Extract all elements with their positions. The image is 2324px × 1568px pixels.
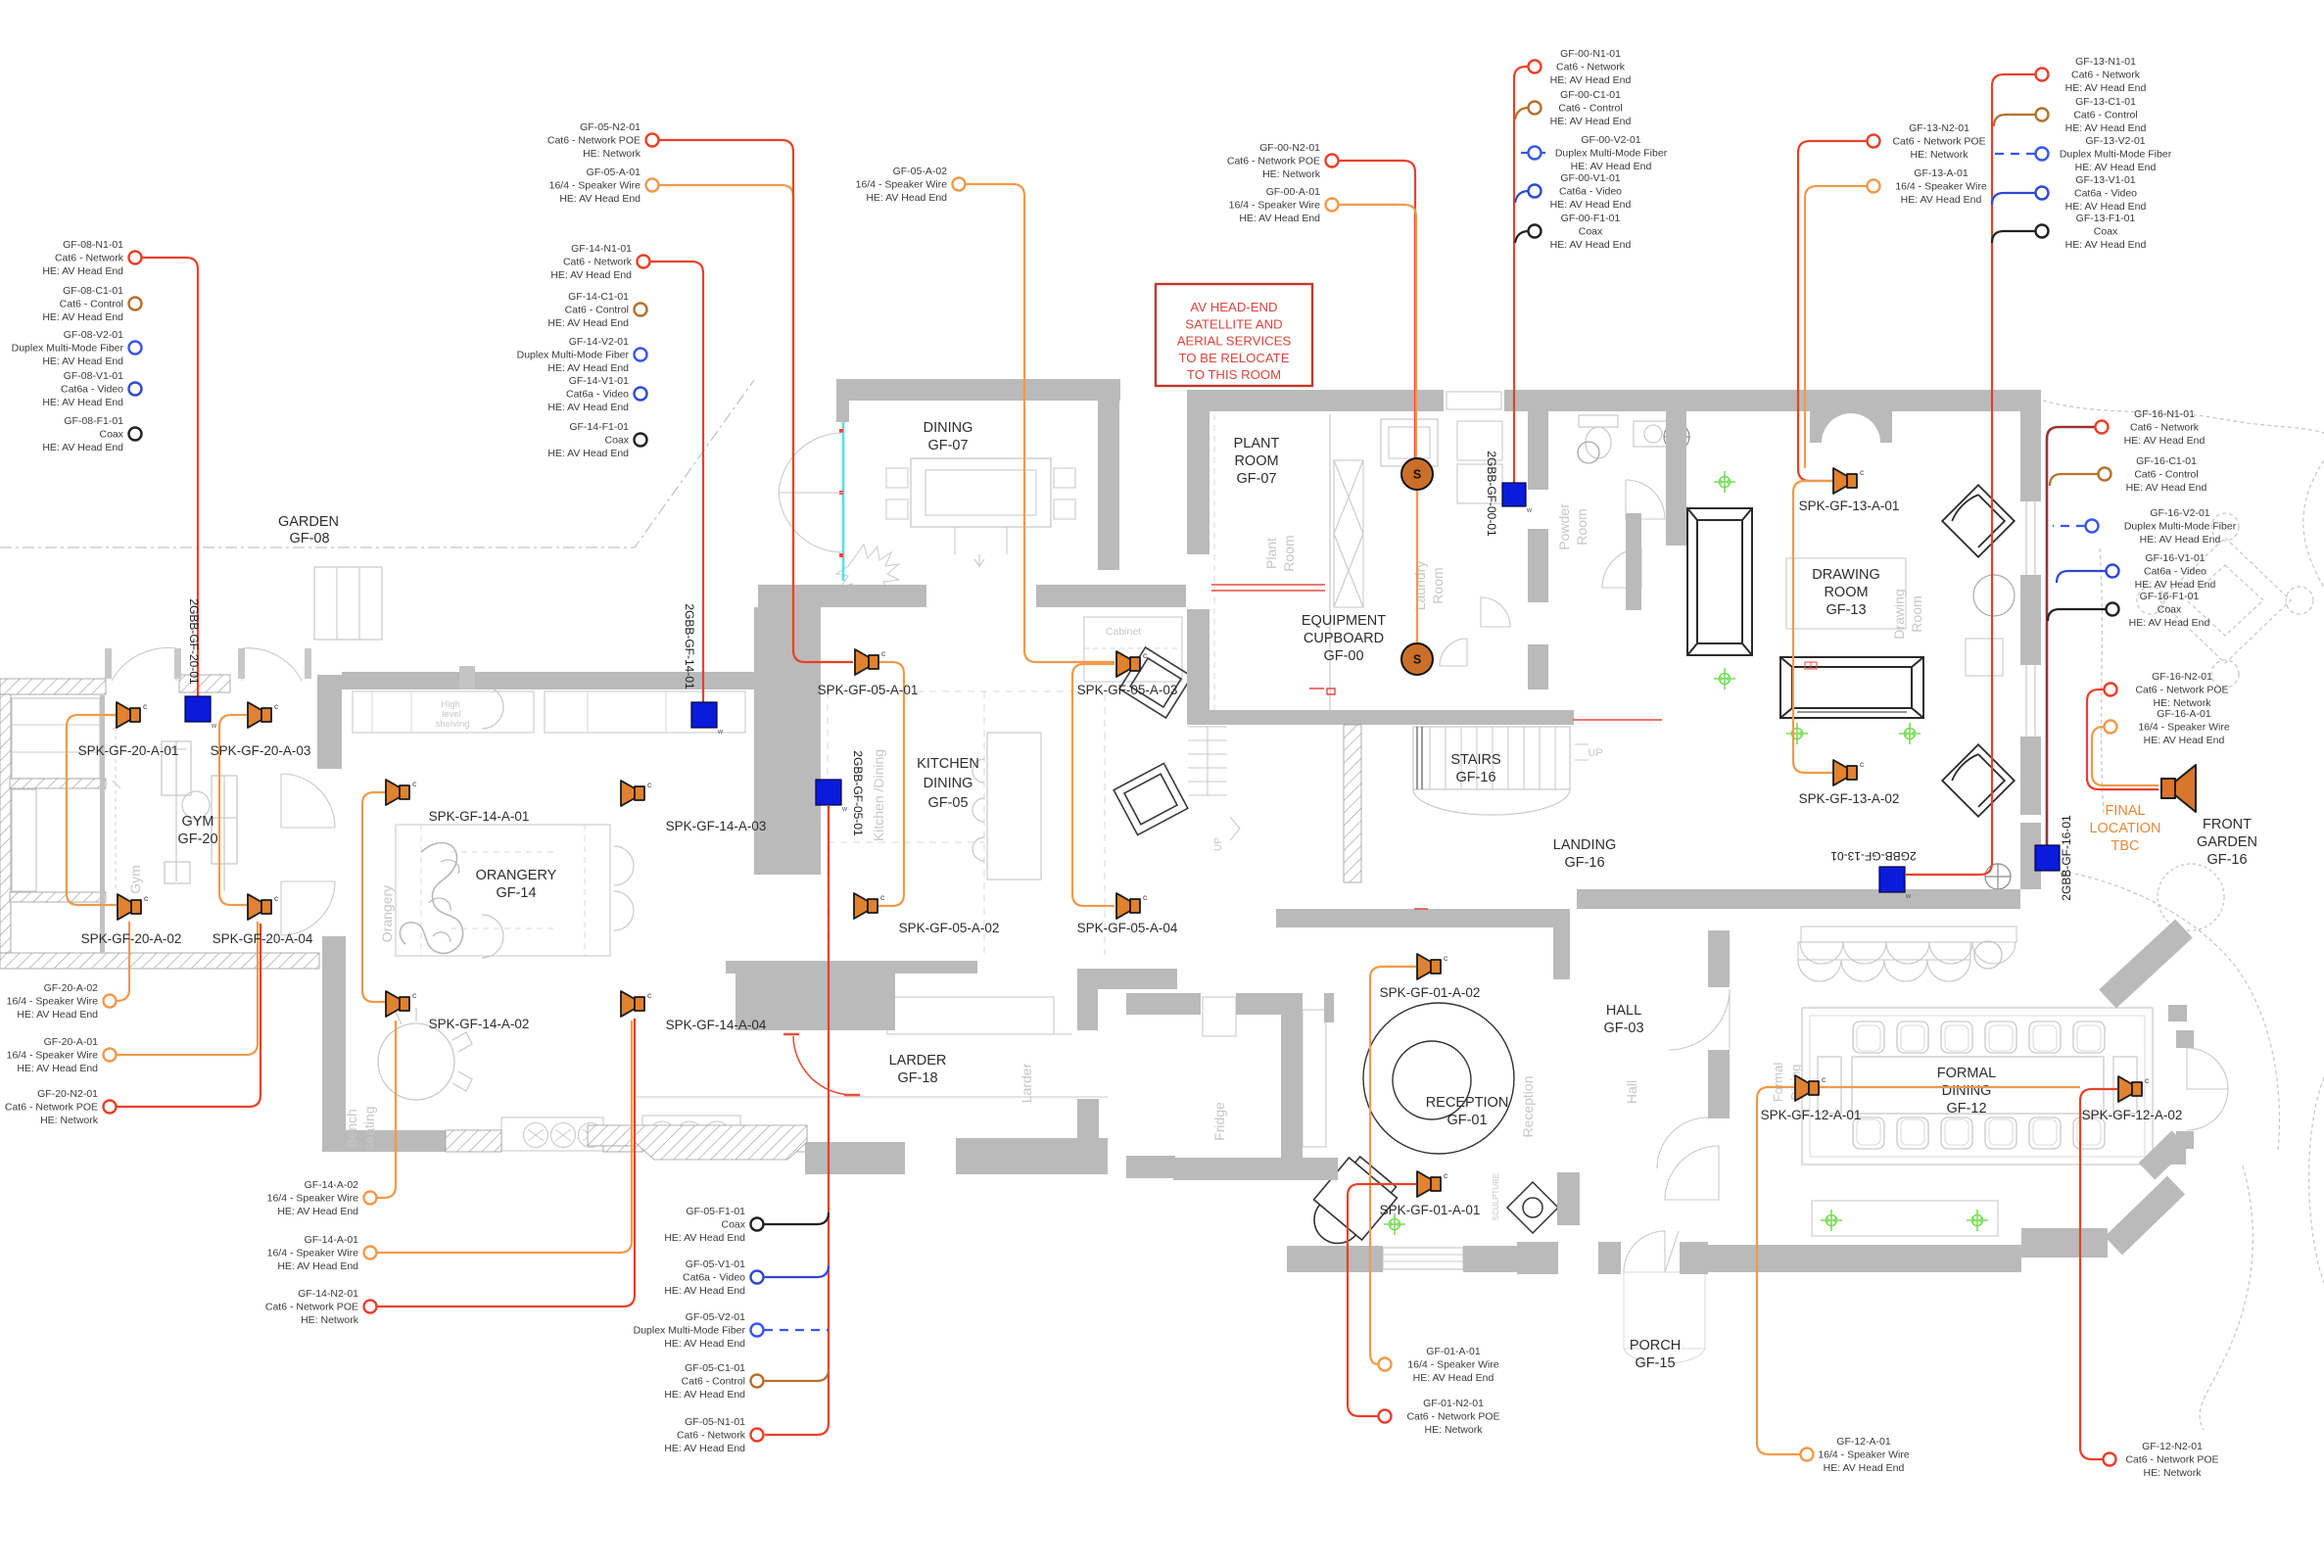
svg-text:FINAL: FINAL [2105,803,2145,819]
svg-text:GF-05-A-02: GF-05-A-02 [893,166,948,177]
svg-text:2GBB-GF-13-01: 2GBB-GF-13-01 [1830,849,1917,863]
svg-text:GF-00-F1-01: GF-00-F1-01 [1561,213,1621,224]
svg-text:ROOM: ROOM [1824,585,1868,600]
svg-text:AERIAL SERVICES: AERIAL SERVICES [1177,334,1292,349]
svg-text:HE: AV Head End: HE: AV Head End [2124,435,2205,447]
svg-text:Cat6 - Network: Cat6 - Network [2130,422,2200,434]
svg-text:HE: AV Head End: HE: AV Head End [2065,239,2147,251]
svg-text:16/4 - Speaker Wire: 16/4 - Speaker Wire [856,179,948,191]
svg-text:shelving: shelving [436,719,470,730]
svg-text:HE: AV Head End: HE: AV Head End [866,192,947,204]
svg-text:GF-14-A-01: GF-14-A-01 [305,1234,359,1246]
svg-text:Duplex Multi-Mode Fiber: Duplex Multi-Mode Fiber [2060,149,2172,161]
svg-text:HE: AV Head End: HE: AV Head End [2065,122,2147,134]
svg-text:GF-16-N1-01: GF-16-N1-01 [2134,408,2195,420]
svg-text:GF-05: GF-05 [927,795,968,811]
svg-text:HE: AV Head End: HE: AV Head End [2065,201,2147,213]
svg-text:GF-16: GF-16 [1455,770,1495,785]
svg-text:HE: AV Head End: HE: AV Head End [42,442,123,453]
svg-text:Cat6 - Network POE: Cat6 - Network POE [1227,156,1320,167]
svg-text:Cat6 - Network: Cat6 - Network [677,1430,746,1442]
svg-text:GF-15: GF-15 [1635,1355,1675,1371]
svg-text:Cat6 - Network POE: Cat6 - Network POE [2135,685,2228,696]
svg-text:Room: Room [1430,567,1446,603]
svg-text:HE: AV Head End: HE: AV Head End [664,1443,745,1454]
svg-text:GF-01: GF-01 [1447,1113,1487,1128]
svg-text:HE: AV Head End: HE: AV Head End [547,362,629,374]
svg-text:Fridge: Fridge [1211,1102,1227,1141]
svg-text:HE: AV Head End: HE: AV Head End [2129,617,2210,629]
svg-text:GARDEN: GARDEN [2197,834,2257,850]
svg-text:GF-13-A-01: GF-13-A-01 [1914,167,1968,179]
svg-text:SPK-GF-12-A-01: SPK-GF-12-A-01 [1761,1108,1862,1122]
svg-text:SPK-GF-14-A-04: SPK-GF-14-A-04 [666,1018,767,1032]
svg-text:GF-13-F1-01: GF-13-F1-01 [2076,213,2136,224]
svg-text:GF-05-A-01: GF-05-A-01 [587,166,641,178]
svg-text:HE: AV Head End: HE: AV Head End [547,448,629,459]
svg-text:PLANT: PLANT [1234,436,1280,451]
svg-text:Cat6 - Network POE: Cat6 - Network POE [547,135,640,147]
svg-text:FRONT: FRONT [2203,817,2252,832]
svg-text:w: w [211,723,217,730]
svg-text:GF-13: GF-13 [1826,602,1866,618]
svg-text:HE: Network: HE: Network [583,148,641,160]
svg-text:Duplex Multi-Mode Fiber: Duplex Multi-Mode Fiber [1555,148,1668,160]
svg-text:GF-16-C1-01: GF-16-C1-01 [2136,455,2197,467]
svg-text:HE: AV Head End: HE: AV Head End [42,265,123,277]
svg-text:Cat6 - Control: Cat6 - Control [60,299,123,310]
svg-text:SPK-GF-05-A-03: SPK-GF-05-A-03 [1077,683,1178,697]
svg-text:Cat6 - Network: Cat6 - Network [2071,70,2141,81]
svg-text:Duplex Multi-Mode Fiber: Duplex Multi-Mode Fiber [517,350,630,361]
svg-text:Formal: Formal [1771,1063,1785,1103]
svg-text:Gym: Gym [127,865,143,894]
svg-text:Duplex Multi-Mode Fiber: Duplex Multi-Mode Fiber [12,343,124,355]
svg-text:HE: AV Head End: HE: AV Head End [17,1063,98,1074]
svg-text:HE: AV Head End: HE: AV Head End [550,269,632,281]
svg-text:DRAWING: DRAWING [1812,567,1880,583]
svg-text:SPK-GF-05-A-04: SPK-GF-05-A-04 [1077,921,1178,935]
svg-text:GF-08-C1-01: GF-08-C1-01 [63,285,123,297]
svg-text:HE: AV Head End: HE: AV Head End [2144,735,2225,746]
svg-text:GF-05-V1-01: GF-05-V1-01 [686,1259,745,1270]
svg-text:Powder: Powder [1556,503,1572,550]
svg-text:PORCH: PORCH [1630,1338,1681,1354]
svg-text:HE: AV Head End: HE: AV Head End [664,1285,745,1297]
svg-text:HE: AV Head End: HE: AV Head End [17,1009,98,1021]
svg-text:TO THIS ROOM: TO THIS ROOM [1187,367,1281,382]
svg-text:Cat6 - Network POE: Cat6 - Network POE [5,1102,98,1114]
svg-text:16/4 - Speaker Wire: 16/4 - Speaker Wire [1229,200,1321,212]
svg-text:GF-00-N2-01: GF-00-N2-01 [1259,142,1320,154]
svg-text:HE: AV Head End: HE: AV Head End [1550,239,1632,251]
svg-text:S: S [1413,468,1421,482]
svg-text:Cat6 - Network: Cat6 - Network [55,253,124,264]
svg-text:DINING: DINING [1942,1083,1992,1099]
svg-text:TBC: TBC [2111,838,2140,854]
svg-text:GF-13-V1-01: GF-13-V1-01 [2075,174,2135,186]
svg-text:DINING: DINING [924,420,973,436]
svg-text:16/4 - Speaker Wire: 16/4 - Speaker Wire [1407,1359,1499,1371]
svg-text:GF-16-F1-01: GF-16-F1-01 [2140,591,2200,602]
svg-text:GF-18: GF-18 [897,1070,937,1086]
svg-text:LARDER: LARDER [889,1053,947,1069]
svg-text:Duplex Multi-Mode Fiber: Duplex Multi-Mode Fiber [2124,521,2237,533]
svg-text:HE: AV Head End: HE: AV Head End [664,1338,745,1350]
svg-text:GF-03: GF-03 [1603,1021,1643,1036]
svg-text:HE: Network: HE: Network [40,1115,99,1126]
svg-text:Cat6a - Video: Cat6a - Video [566,389,629,401]
svg-text:SPK-GF-13-A-01: SPK-GF-13-A-01 [1799,499,1900,513]
svg-text:HE: AV Head End: HE: AV Head End [42,397,123,408]
svg-text:GF-01-A-01: GF-01-A-01 [1426,1346,1481,1357]
svg-text:GF-14-C1-01: GF-14-C1-01 [568,291,629,303]
svg-text:GF-14-A-02: GF-14-A-02 [305,1179,359,1191]
svg-text:HE: Network: HE: Network [301,1314,359,1326]
svg-text:Coax: Coax [1579,226,1603,238]
svg-text:SPK-GF-20-A-02: SPK-GF-20-A-02 [81,931,182,946]
svg-text:RECEPTION: RECEPTION [1426,1095,1509,1111]
svg-text:SPK-GF-14-A-02: SPK-GF-14-A-02 [429,1017,530,1031]
svg-text:SPK-GF-20-A-03: SPK-GF-20-A-03 [211,743,311,758]
svg-text:GF-14-V1-01: GF-14-V1-01 [569,375,629,387]
svg-text:GF-05-F1-01: GF-05-F1-01 [686,1206,745,1217]
svg-text:SPK-GF-01-A-02: SPK-GF-01-A-02 [1380,985,1481,1000]
svg-text:HE: AV Head End: HE: AV Head End [1413,1372,1494,1384]
svg-text:HE: Network: HE: Network [2144,1467,2203,1479]
svg-text:Orangery: Orangery [379,885,395,942]
svg-text:GF-16-V2-01: GF-16-V2-01 [2150,507,2209,519]
svg-text:GF-08-F1-01: GF-08-F1-01 [64,415,123,427]
svg-text:Room: Room [1281,535,1297,571]
svg-text:GF-20-N2-01: GF-20-N2-01 [37,1088,98,1100]
svg-text:SCULPTURE: SCULPTURE [1492,1173,1500,1220]
svg-text:GF-07: GF-07 [1236,471,1276,487]
svg-text:Larder: Larder [1019,1063,1034,1103]
svg-text:2GBB-GF-00-01: 2GBB-GF-00-01 [1485,451,1498,537]
svg-text:Cat6 - Control: Cat6 - Control [2134,469,2198,481]
svg-text:Cat6 - Control: Cat6 - Control [1558,103,1622,115]
svg-text:16/4 - Speaker Wire: 16/4 - Speaker Wire [1895,181,1987,193]
svg-text:GF-14: GF-14 [496,885,536,901]
svg-text:16/4 - Speaker Wire: 16/4 - Speaker Wire [267,1248,359,1259]
svg-text:HE: AV Head End: HE: AV Head End [2135,579,2216,591]
svg-text:Coax: Coax [721,1219,745,1231]
svg-text:GF-05-C1-01: GF-05-C1-01 [685,1362,745,1374]
svg-text:GF-16-N2-01: GF-16-N2-01 [2152,671,2212,683]
svg-text:Coax: Coax [604,435,629,447]
svg-text:GF-12-A-01: GF-12-A-01 [1836,1436,1891,1448]
svg-text:GF-16-A-01: GF-16-A-01 [2157,708,2211,720]
svg-text:HE: AV Head End: HE: AV Head End [1550,199,1632,211]
svg-text:GF-00-V1-01: GF-00-V1-01 [1560,172,1620,184]
svg-text:2GBB-GF-16-01: 2GBB-GF-16-01 [2060,815,2073,901]
svg-text:HE: AV Head End: HE: AV Head End [277,1206,358,1217]
svg-text:HE: AV Head End: HE: AV Head End [2140,534,2221,546]
svg-text:SPK-GF-05-A-02: SPK-GF-05-A-02 [899,921,1000,935]
svg-text:GF-08-N1-01: GF-08-N1-01 [63,239,123,251]
svg-text:w: w [1526,507,1533,514]
svg-text:Cat6 - Network POE: Cat6 - Network POE [1892,136,1985,148]
svg-text:SPK-GF-14-A-03: SPK-GF-14-A-03 [666,819,767,833]
svg-text:GF-20: GF-20 [177,832,217,847]
svg-text:GYM: GYM [181,814,213,830]
svg-text:Cat6 - Network: Cat6 - Network [1556,62,1626,73]
svg-text:Cat6 - Control: Cat6 - Control [565,305,629,316]
svg-text:GF-05-V2-01: GF-05-V2-01 [686,1311,745,1323]
svg-text:w: w [841,806,848,813]
svg-text:Hall: Hall [1624,1080,1639,1104]
svg-text:HE: AV Head End: HE: AV Head End [2126,482,2207,494]
svg-text:GF-00-C1-01: GF-00-C1-01 [1560,89,1621,101]
svg-text:HE: AV Head End: HE: AV Head End [547,402,629,413]
svg-text:SPK-GF-05-A-01: SPK-GF-05-A-01 [818,683,919,697]
svg-text:HE: AV Head End: HE: AV Head End [547,317,629,329]
svg-text:16/4 - Speaker Wire: 16/4 - Speaker Wire [1818,1449,1910,1461]
svg-text:GF-12: GF-12 [1946,1101,1986,1117]
svg-text:HE: AV Head End: HE: AV Head End [559,193,640,205]
svg-text:Cat6 - Network POE: Cat6 - Network POE [265,1302,358,1313]
svg-text:Plant: Plant [1263,538,1279,569]
svg-text:AV HEAD-END: AV HEAD-END [1190,300,1277,314]
svg-text:HE: AV Head End: HE: AV Head End [1550,74,1632,86]
svg-text:16/4 - Speaker Wire: 16/4 - Speaker Wire [549,180,641,192]
svg-text:HE: AV Head End: HE: AV Head End [1901,194,1982,206]
svg-text:GF-14-F1-01: GF-14-F1-01 [569,421,629,433]
svg-text:GF-20-A-01: GF-20-A-01 [44,1036,99,1048]
svg-text:GF-08: GF-08 [289,531,329,546]
svg-text:HE: AV Head End: HE: AV Head End [2065,82,2147,94]
svg-text:Duplex Multi-Mode Fiber: Duplex Multi-Mode Fiber [634,1325,746,1337]
svg-text:GARDEN: GARDEN [278,514,339,530]
svg-text:KITCHEN: KITCHEN [917,756,979,772]
svg-text:Cat6a - Video: Cat6a - Video [683,1272,745,1284]
svg-text:2GBB-GF-20-01: 2GBB-GF-20-01 [187,598,201,685]
svg-text:GF-13-N1-01: GF-13-N1-01 [2075,56,2136,68]
svg-text:Room: Room [1574,508,1589,545]
svg-text:GF-00-N1-01: GF-00-N1-01 [1560,48,1621,60]
svg-text:TO BE RELOCATE: TO BE RELOCATE [1178,351,1289,365]
svg-text:Cat6 - Network: Cat6 - Network [563,257,633,268]
svg-text:SATELLITE AND: SATELLITE AND [1185,316,1282,331]
svg-text:Cat6a - Video: Cat6a - Video [61,384,123,396]
svg-text:Bench: Bench [344,1109,359,1148]
svg-text:GF-13-N2-01: GF-13-N2-01 [1909,122,1969,134]
svg-text:SPK-GF-20-A-04: SPK-GF-20-A-04 [213,931,313,946]
svg-text:LOCATION: LOCATION [2089,821,2160,836]
svg-text:SPK-GF-20-A-01: SPK-GF-20-A-01 [78,743,179,758]
svg-text:Cat6 - Control: Cat6 - Control [682,1376,745,1388]
svg-text:HE: Network: HE: Network [1911,149,1969,161]
svg-text:HE: AV Head End: HE: AV Head End [1239,213,1320,224]
svg-text:DINING: DINING [924,776,973,791]
svg-text:HE: AV Head End: HE: AV Head End [1571,161,1652,172]
svg-text:Cabinet: Cabinet [1106,626,1141,638]
svg-text:GF-14-N1-01: GF-14-N1-01 [571,243,632,255]
svg-text:CUPBOARD: CUPBOARD [1304,631,1384,646]
svg-text:GF-05-N1-01: GF-05-N1-01 [685,1416,745,1428]
svg-text:FORMAL: FORMAL [1937,1066,1996,1081]
svg-text:STAIRS: STAIRS [1450,752,1500,768]
svg-text:Cat6 - Control: Cat6 - Control [2073,110,2137,121]
svg-text:GF-00: GF-00 [1323,648,1363,664]
svg-text:Room: Room [1909,595,1924,632]
svg-text:HE: AV Head End: HE: AV Head End [42,311,123,323]
svg-text:w: w [717,729,724,736]
svg-text:SPK-GF-01-A-01: SPK-GF-01-A-01 [1380,1203,1481,1217]
svg-text:GF-13-C1-01: GF-13-C1-01 [2075,96,2136,108]
svg-text:SPK-GF-12-A-02: SPK-GF-12-A-02 [2082,1108,2183,1122]
svg-text:UP: UP [1588,747,1602,759]
svg-text:HE: AV Head End: HE: AV Head End [2075,162,2157,173]
svg-text:Cat6a - Video: Cat6a - Video [2074,188,2137,200]
svg-text:S: S [1413,653,1421,667]
svg-text:GF-01-N2-01: GF-01-N2-01 [1423,1398,1484,1409]
svg-text:Kitchen /Dining: Kitchen /Dining [871,749,886,841]
svg-text:2GBB-GF-05-01: 2GBB-GF-05-01 [851,750,865,836]
svg-text:HE: Network: HE: Network [1262,168,1321,180]
svg-text:GF-05-N2-01: GF-05-N2-01 [580,121,640,133]
svg-text:16/4 - Speaker Wire: 16/4 - Speaker Wire [267,1193,359,1205]
svg-text:GF-13-V2-01: GF-13-V2-01 [2085,135,2145,147]
svg-text:2GBB-GF-14-01: 2GBB-GF-14-01 [683,603,696,689]
svg-text:GF-14-V2-01: GF-14-V2-01 [569,336,629,348]
svg-text:Cat6a - Video: Cat6a - Video [1559,186,1622,198]
svg-text:HE: Network: HE: Network [1425,1424,1484,1436]
svg-text:GF-00-V2-01: GF-00-V2-01 [1581,134,1640,146]
svg-text:UP: UP [1213,837,1224,851]
svg-text:Cat6 - Network POE: Cat6 - Network POE [2125,1454,2218,1466]
svg-text:HE: AV Head End: HE: AV Head End [1550,116,1632,127]
svg-text:GF-16: GF-16 [2206,852,2247,868]
svg-text:GF-16-V1-01: GF-16-V1-01 [2145,552,2205,564]
svg-text:ORANGERY: ORANGERY [476,868,557,883]
svg-text:HE: AV Head End: HE: AV Head End [664,1232,745,1244]
svg-text:LANDING: LANDING [1553,837,1616,853]
svg-text:HE: AV Head End: HE: AV Head End [1824,1462,1905,1474]
svg-text:16/4 - Speaker Wire: 16/4 - Speaker Wire [2138,722,2230,734]
svg-text:Coax: Coax [2158,604,2182,616]
svg-text:HE: AV Head End: HE: AV Head End [664,1389,745,1401]
svg-text:w: w [1905,893,1912,900]
svg-text:GF-08-V2-01: GF-08-V2-01 [64,329,123,341]
svg-text:SPK-GF-13-A-02: SPK-GF-13-A-02 [1799,791,1900,806]
svg-text:GF-14-N2-01: GF-14-N2-01 [298,1288,358,1300]
svg-text:Cat6a - Video: Cat6a - Video [2144,566,2206,578]
svg-text:GF-08-V1-01: GF-08-V1-01 [64,370,123,382]
svg-text:Drawing: Drawing [1891,589,1907,639]
svg-text:GF-20-A-02: GF-20-A-02 [44,982,99,994]
svg-text:HE: AV Head End: HE: AV Head End [42,356,123,367]
svg-text:GF-16: GF-16 [1564,855,1604,871]
svg-text:HALL: HALL [1606,1003,1641,1019]
svg-text:GF-07: GF-07 [927,438,968,453]
svg-text:Cat6 - Network POE: Cat6 - Network POE [1406,1411,1499,1423]
svg-text:EQUIPMENT: EQUIPMENT [1302,613,1386,629]
svg-text:Laundry: Laundry [1412,561,1428,611]
svg-text:16/4 - Speaker Wire: 16/4 - Speaker Wire [7,1050,99,1062]
svg-text:Coax: Coax [2094,226,2118,238]
svg-text:seating: seating [361,1106,377,1150]
svg-text:Coax: Coax [99,429,123,441]
svg-text:GF-00-A-01: GF-00-A-01 [1266,186,1321,198]
svg-text:SPK-GF-14-A-01: SPK-GF-14-A-01 [429,809,530,824]
svg-text:ROOM: ROOM [1234,453,1278,469]
svg-text:Reception: Reception [1520,1075,1536,1137]
svg-text:16/4 - Speaker Wire: 16/4 - Speaker Wire [7,996,99,1008]
svg-text:GF-12-N2-01: GF-12-N2-01 [2142,1441,2203,1452]
svg-text:HE: AV Head End: HE: AV Head End [277,1260,358,1272]
